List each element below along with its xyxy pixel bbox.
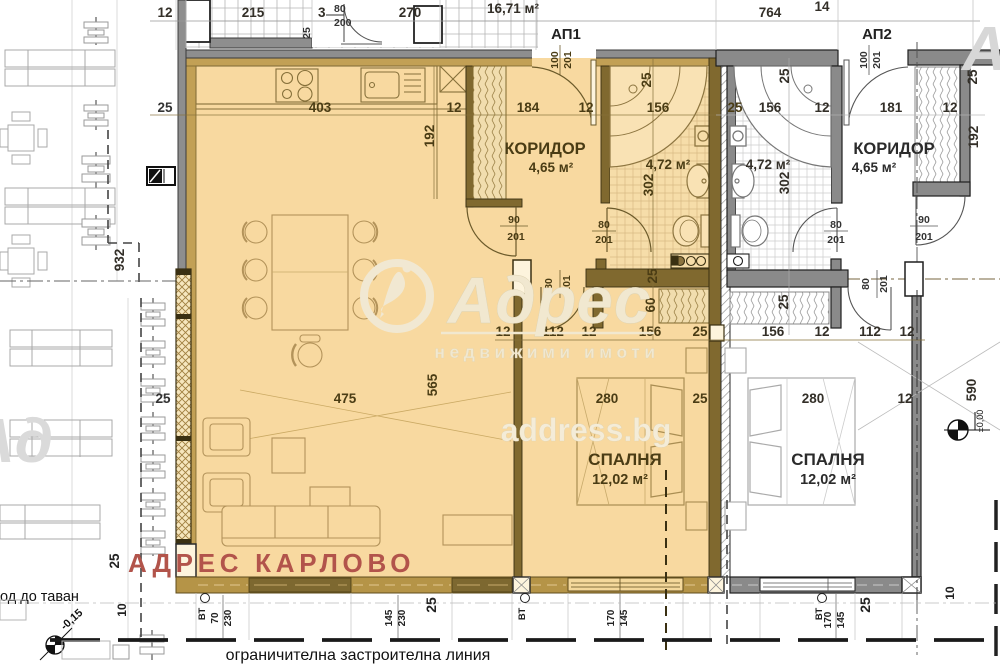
- svg-text:590: 590: [964, 379, 979, 402]
- svg-text:215: 215: [242, 5, 265, 20]
- svg-text:Ад: Ад: [0, 407, 53, 476]
- svg-text:112: 112: [859, 324, 881, 339]
- svg-text:12: 12: [446, 100, 461, 115]
- svg-text:80: 80: [598, 219, 610, 231]
- svg-text:80: 80: [334, 3, 346, 15]
- svg-text:145: 145: [384, 609, 395, 626]
- svg-text:ВТ: ВТ: [197, 608, 208, 620]
- svg-text:201: 201: [915, 231, 933, 243]
- svg-text:±0,00: ±0,00: [975, 410, 985, 432]
- svg-text:25: 25: [301, 27, 313, 39]
- svg-text:СПАЛНЯ: СПАЛНЯ: [588, 450, 661, 469]
- svg-text:16,71 м²: 16,71 м²: [487, 1, 540, 16]
- svg-text:201: 201: [507, 231, 525, 243]
- svg-text:403: 403: [309, 100, 332, 115]
- svg-text:12: 12: [157, 5, 172, 20]
- svg-text:170: 170: [606, 609, 617, 626]
- svg-text:80: 80: [860, 278, 872, 290]
- svg-text:170: 170: [823, 611, 834, 628]
- svg-text:25: 25: [857, 597, 873, 613]
- svg-text:25: 25: [639, 72, 654, 88]
- svg-text:932: 932: [112, 249, 127, 272]
- svg-text:201: 201: [595, 234, 613, 246]
- svg-text:4,72 м²: 4,72 м²: [646, 157, 691, 172]
- svg-text:270: 270: [399, 5, 422, 20]
- svg-text:25: 25: [155, 391, 171, 406]
- svg-text:156: 156: [762, 324, 785, 339]
- svg-text:565: 565: [425, 373, 440, 396]
- svg-text:12: 12: [897, 391, 912, 406]
- svg-text:А: А: [960, 15, 1000, 84]
- svg-text:25: 25: [423, 597, 439, 613]
- svg-text:475: 475: [334, 391, 357, 406]
- svg-text:201: 201: [878, 275, 890, 293]
- svg-text:192: 192: [966, 126, 981, 149]
- svg-text:25: 25: [692, 324, 708, 339]
- svg-text:10: 10: [943, 586, 957, 600]
- svg-text:АП1: АП1: [551, 26, 581, 43]
- svg-text:12: 12: [942, 100, 957, 115]
- svg-text:100: 100: [858, 51, 870, 69]
- svg-text:12,02 м²: 12,02 м²: [592, 472, 648, 488]
- svg-text:302: 302: [641, 174, 656, 197]
- svg-text:ограничителна застроителна лин: ограничителна застроителна линия: [226, 647, 491, 664]
- svg-text:12: 12: [814, 100, 829, 115]
- svg-text:90: 90: [508, 214, 520, 226]
- svg-text:АДРЕС КАРЛОВО: АДРЕС КАРЛОВО: [128, 548, 415, 578]
- svg-text:12: 12: [814, 324, 829, 339]
- svg-text:156: 156: [759, 100, 782, 115]
- svg-text:25: 25: [777, 68, 792, 84]
- svg-text:230: 230: [223, 609, 234, 626]
- svg-text:4,72 м²: 4,72 м²: [746, 157, 791, 172]
- svg-text:184: 184: [517, 100, 540, 115]
- svg-text:90: 90: [918, 214, 930, 226]
- svg-text:100: 100: [549, 51, 561, 69]
- svg-text:145: 145: [836, 611, 847, 628]
- svg-text:10: 10: [115, 603, 129, 617]
- svg-text:ВТ: ВТ: [517, 608, 528, 620]
- svg-text:280: 280: [802, 391, 825, 406]
- svg-text:181: 181: [880, 100, 903, 115]
- svg-text:201: 201: [871, 51, 883, 69]
- svg-text:од до таван: од до таван: [0, 589, 79, 605]
- svg-text:25: 25: [692, 391, 708, 406]
- svg-text:25: 25: [107, 553, 122, 569]
- svg-text:12: 12: [578, 100, 593, 115]
- svg-text:12: 12: [899, 324, 914, 339]
- svg-text:Адрес: Адрес: [446, 263, 651, 337]
- svg-text:address.bg: address.bg: [501, 412, 672, 448]
- svg-text:АП2: АП2: [862, 26, 892, 43]
- svg-text:192: 192: [422, 125, 437, 148]
- svg-text:4,65 м²: 4,65 м²: [852, 160, 897, 175]
- svg-text:80: 80: [830, 219, 842, 231]
- svg-text:3: 3: [318, 5, 326, 20]
- svg-text:КОРИДОР: КОРИДОР: [853, 140, 934, 158]
- svg-text:70: 70: [210, 612, 221, 624]
- svg-text:КОРИДОР: КОРИДОР: [504, 140, 585, 158]
- svg-text:156: 156: [647, 100, 670, 115]
- svg-text:25: 25: [727, 100, 743, 115]
- svg-text:25: 25: [157, 100, 173, 115]
- svg-text:12,02 м²: 12,02 м²: [800, 472, 856, 488]
- svg-text:145: 145: [619, 609, 630, 626]
- svg-text:СПАЛНЯ: СПАЛНЯ: [791, 450, 864, 469]
- svg-text:201: 201: [562, 51, 574, 69]
- svg-text:недвижими имоти: недвижими имоти: [434, 342, 659, 362]
- svg-text:201: 201: [827, 234, 845, 246]
- svg-text:302: 302: [777, 172, 792, 195]
- svg-text:764: 764: [759, 5, 782, 20]
- svg-text:14: 14: [814, 0, 830, 14]
- svg-text:230: 230: [397, 609, 408, 626]
- svg-text:25: 25: [776, 294, 791, 310]
- svg-text:200: 200: [334, 17, 352, 29]
- svg-text:4,65 м²: 4,65 м²: [529, 160, 574, 175]
- svg-text:280: 280: [596, 391, 619, 406]
